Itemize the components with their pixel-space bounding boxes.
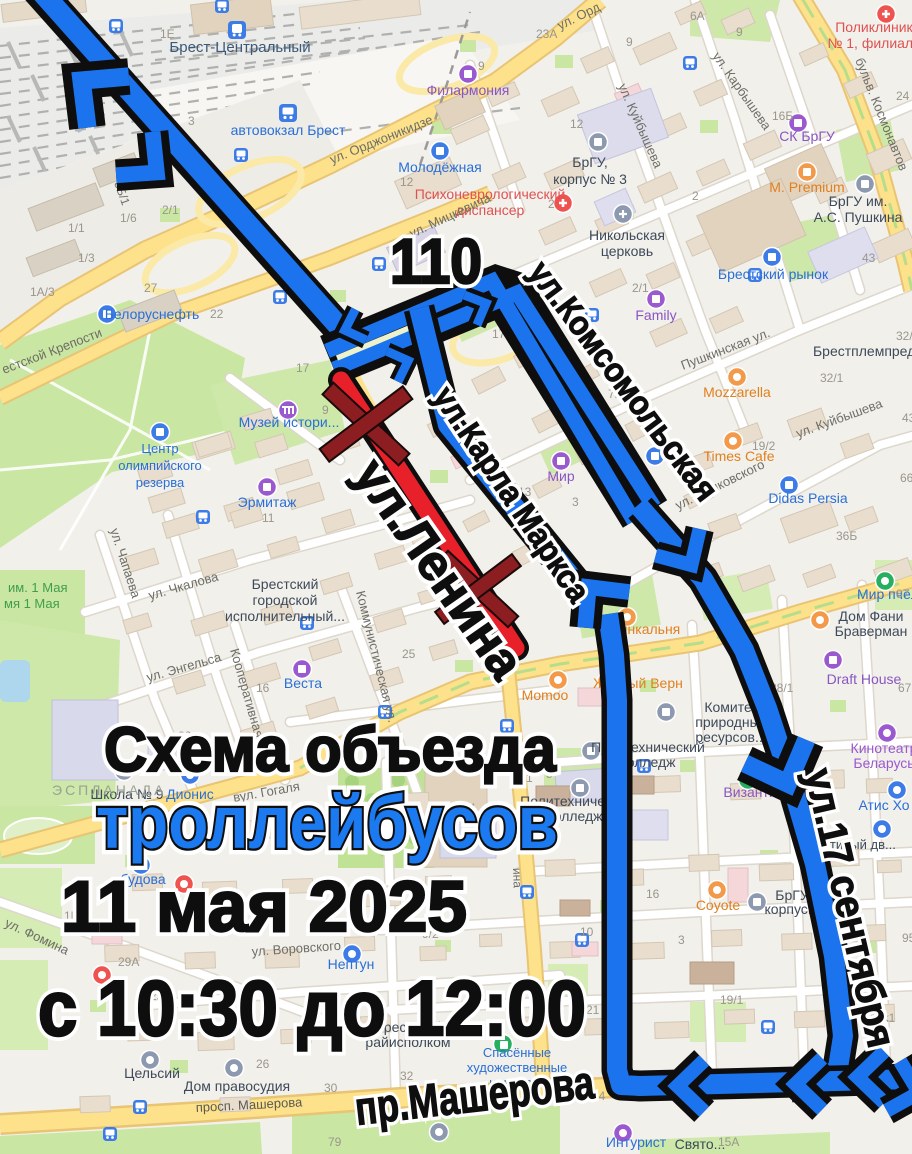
svg-text:Схема объезда: Схема объезда: [104, 715, 557, 785]
svg-text:3: 3: [678, 933, 685, 947]
svg-text:Брест-Центральный: Брест-Центральный: [169, 39, 310, 56]
svg-text:Дом правосудия: Дом правосудия: [184, 1078, 290, 1094]
svg-text:Атис Хо: Атис Хо: [858, 797, 909, 813]
svg-text:1/6: 1/6: [120, 211, 137, 225]
svg-text:43: 43: [902, 411, 912, 425]
svg-text:исполнительный...: исполнительный...: [225, 608, 345, 624]
svg-text:троллейбусов: троллейбусов: [96, 780, 558, 864]
svg-text:Цельсий: Цельсий: [124, 1065, 180, 1081]
svg-text:1Е: 1Е: [160, 27, 175, 41]
svg-text:1/3: 1/3: [78, 251, 95, 265]
svg-text:Брестский рынок: Брестский рынок: [718, 266, 829, 282]
svg-text:им. 1 Мая: им. 1 Мая: [8, 580, 68, 595]
svg-text:43: 43: [862, 251, 876, 265]
svg-text:Центр: Центр: [141, 441, 178, 456]
svg-text:СК БрГУ: СК БрГУ: [779, 128, 835, 144]
svg-text:21: 21: [586, 1003, 600, 1017]
svg-text:3: 3: [572, 495, 579, 509]
svg-text:А.С. Пушкина: А.С. Пушкина: [814, 209, 903, 225]
svg-text:Mozzarella: Mozzarella: [703, 384, 771, 400]
svg-text:2: 2: [692, 189, 699, 203]
svg-text:9: 9: [626, 35, 633, 49]
svg-text:Беларусь: Беларусь: [853, 755, 912, 771]
svg-text:16: 16: [256, 681, 270, 695]
svg-text:ресурсов...: ресурсов...: [695, 729, 766, 745]
svg-text:11: 11: [262, 511, 275, 525]
svg-text:16Б: 16Б: [772, 109, 793, 123]
svg-text:2/1: 2/1: [632, 281, 649, 295]
svg-text:66: 66: [900, 471, 912, 485]
svg-text:резерва: резерва: [136, 475, 185, 490]
svg-text:110: 110: [390, 227, 482, 297]
svg-text:9: 9: [322, 403, 329, 417]
svg-text:с 10:30 до 12:00: с 10:30 до 12:00: [38, 964, 586, 1052]
svg-text:олимпийского: олимпийского: [118, 458, 202, 473]
svg-text:Мир: Мир: [547, 468, 574, 484]
svg-text:Family: Family: [635, 307, 676, 323]
svg-text:22: 22: [210, 307, 224, 321]
svg-text:Белоруснефть: Белоруснефть: [105, 306, 200, 322]
svg-text:79: 79: [328, 1135, 342, 1149]
svg-text:25: 25: [402, 647, 416, 661]
svg-text:17: 17: [296, 361, 310, 375]
svg-text:Брестский: Брестский: [252, 576, 319, 592]
svg-text:инкальня: инкальня: [620, 621, 681, 637]
svg-text:Дом Фани: Дом Фани: [839, 608, 904, 624]
svg-text:24: 24: [896, 89, 910, 103]
svg-text:автовокзал Брест: автовокзал Брест: [231, 122, 346, 138]
svg-text:87: 87: [896, 587, 910, 601]
svg-text:2/1: 2/1: [162, 203, 179, 217]
svg-text:15А: 15А: [718, 1135, 739, 1149]
svg-text:Didas Persia: Didas Persia: [768, 490, 848, 506]
svg-text:16: 16: [646, 887, 660, 901]
svg-text:30: 30: [324, 1081, 338, 1095]
svg-text:1/1: 1/1: [68, 221, 85, 235]
svg-text:12: 12: [400, 175, 414, 189]
svg-text:Молодёжная: Молодёжная: [398, 159, 482, 175]
svg-text:Кинотеатр: Кинотеатр: [851, 740, 912, 756]
svg-text:Эрмитаж: Эрмитаж: [238, 494, 297, 510]
svg-text:26: 26: [256, 1057, 270, 1071]
svg-text:9: 9: [478, 59, 485, 73]
svg-text:1А/3: 1А/3: [30, 285, 55, 299]
svg-text:БрГУ,: БрГУ,: [572, 154, 607, 170]
svg-text:Интурист: Интурист: [606, 1134, 667, 1150]
svg-text:Поликлиника: Поликлиника: [835, 19, 912, 35]
svg-text:6А: 6А: [690, 9, 705, 23]
svg-text:Coyote: Coyote: [696, 897, 741, 913]
svg-text:Браверман: Браверман: [835, 623, 908, 639]
svg-text:БрГУ им.: БрГУ им.: [829, 193, 888, 209]
svg-text:Брестплемпред...: Брестплемпред...: [813, 343, 912, 359]
svg-text:23А: 23А: [536, 27, 557, 41]
svg-text:№ 1, филиал М: № 1, филиал М: [827, 35, 912, 51]
svg-text:27: 27: [144, 281, 158, 295]
svg-text:городской: городской: [253, 592, 318, 608]
svg-text:32/1: 32/1: [820, 371, 844, 385]
svg-text:19/1: 19/1: [720, 993, 744, 1007]
svg-text:10: 10: [580, 925, 594, 939]
svg-text:32/1: 32/1: [896, 329, 912, 343]
svg-text:9: 9: [736, 25, 743, 39]
svg-text:Draft House: Draft House: [827, 671, 902, 687]
svg-text:Никольская: Никольская: [589, 227, 665, 243]
svg-text:12: 12: [570, 117, 584, 131]
svg-text:Momoo: Momoo: [522, 687, 569, 703]
svg-text:36Б: 36Б: [836, 529, 857, 543]
svg-text:2: 2: [548, 197, 555, 211]
svg-text:ина: ина: [510, 868, 525, 889]
svg-text:19/2: 19/2: [752, 439, 776, 453]
svg-text:мя 1 Мая: мя 1 Мая: [4, 596, 60, 611]
svg-text:11 мая 2025: 11 мая 2025: [61, 868, 467, 947]
svg-text:3: 3: [188, 114, 195, 128]
svg-text:Филармония: Филармония: [427, 82, 510, 98]
svg-text:корпус № 3: корпус № 3: [553, 171, 627, 187]
svg-text:церковь: церковь: [601, 243, 653, 259]
svg-text:Веста: Веста: [284, 675, 322, 691]
svg-text:67: 67: [898, 681, 912, 695]
svg-text:95: 95: [902, 931, 912, 945]
